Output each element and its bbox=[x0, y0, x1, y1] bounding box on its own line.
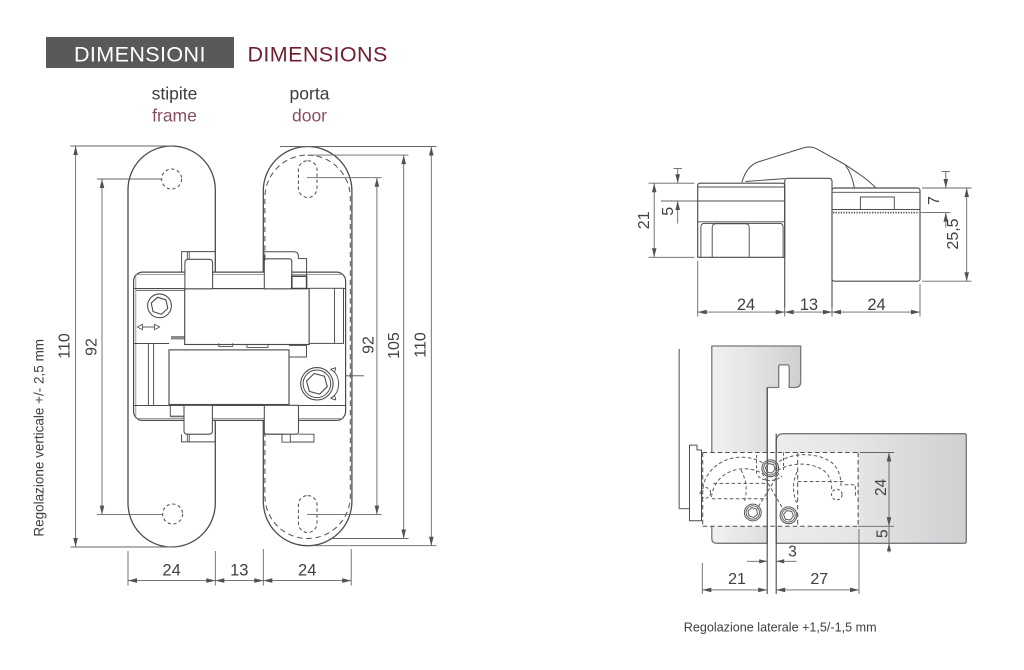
svg-text:13: 13 bbox=[230, 561, 248, 579]
svg-text:door: door bbox=[292, 106, 327, 126]
svg-text:92: 92 bbox=[83, 338, 100, 356]
svg-text:21: 21 bbox=[636, 211, 653, 229]
svg-text:DIMENSIONS: DIMENSIONS bbox=[248, 43, 388, 67]
svg-text:7: 7 bbox=[926, 196, 943, 205]
svg-text:21: 21 bbox=[728, 571, 746, 588]
svg-text:24: 24 bbox=[737, 296, 755, 314]
svg-text:110: 110 bbox=[56, 333, 73, 359]
svg-text:Regolazione laterale +1,5/-1,5: Regolazione laterale +1,5/-1,5 mm bbox=[684, 621, 877, 635]
svg-text:porta: porta bbox=[290, 84, 330, 104]
svg-text:24: 24 bbox=[162, 561, 180, 579]
svg-text:5: 5 bbox=[874, 529, 891, 538]
svg-text:24: 24 bbox=[873, 478, 890, 496]
svg-text:110: 110 bbox=[413, 332, 430, 358]
svg-text:105: 105 bbox=[386, 332, 403, 359]
svg-text:stipite: stipite bbox=[152, 84, 198, 104]
svg-text:24: 24 bbox=[867, 296, 885, 314]
svg-text:13: 13 bbox=[800, 296, 818, 314]
svg-text:Regolazione verticale +/- 2,5: Regolazione verticale +/- 2,5 mm bbox=[32, 339, 47, 537]
svg-text:frame: frame bbox=[152, 106, 197, 126]
svg-text:DIMENSIONI: DIMENSIONI bbox=[74, 43, 206, 67]
svg-text:3: 3 bbox=[788, 544, 797, 561]
svg-text:5: 5 bbox=[660, 207, 677, 216]
svg-text:25,5: 25,5 bbox=[945, 218, 962, 249]
svg-text:24: 24 bbox=[298, 561, 316, 579]
svg-text:27: 27 bbox=[810, 571, 828, 588]
svg-text:92: 92 bbox=[361, 336, 378, 354]
